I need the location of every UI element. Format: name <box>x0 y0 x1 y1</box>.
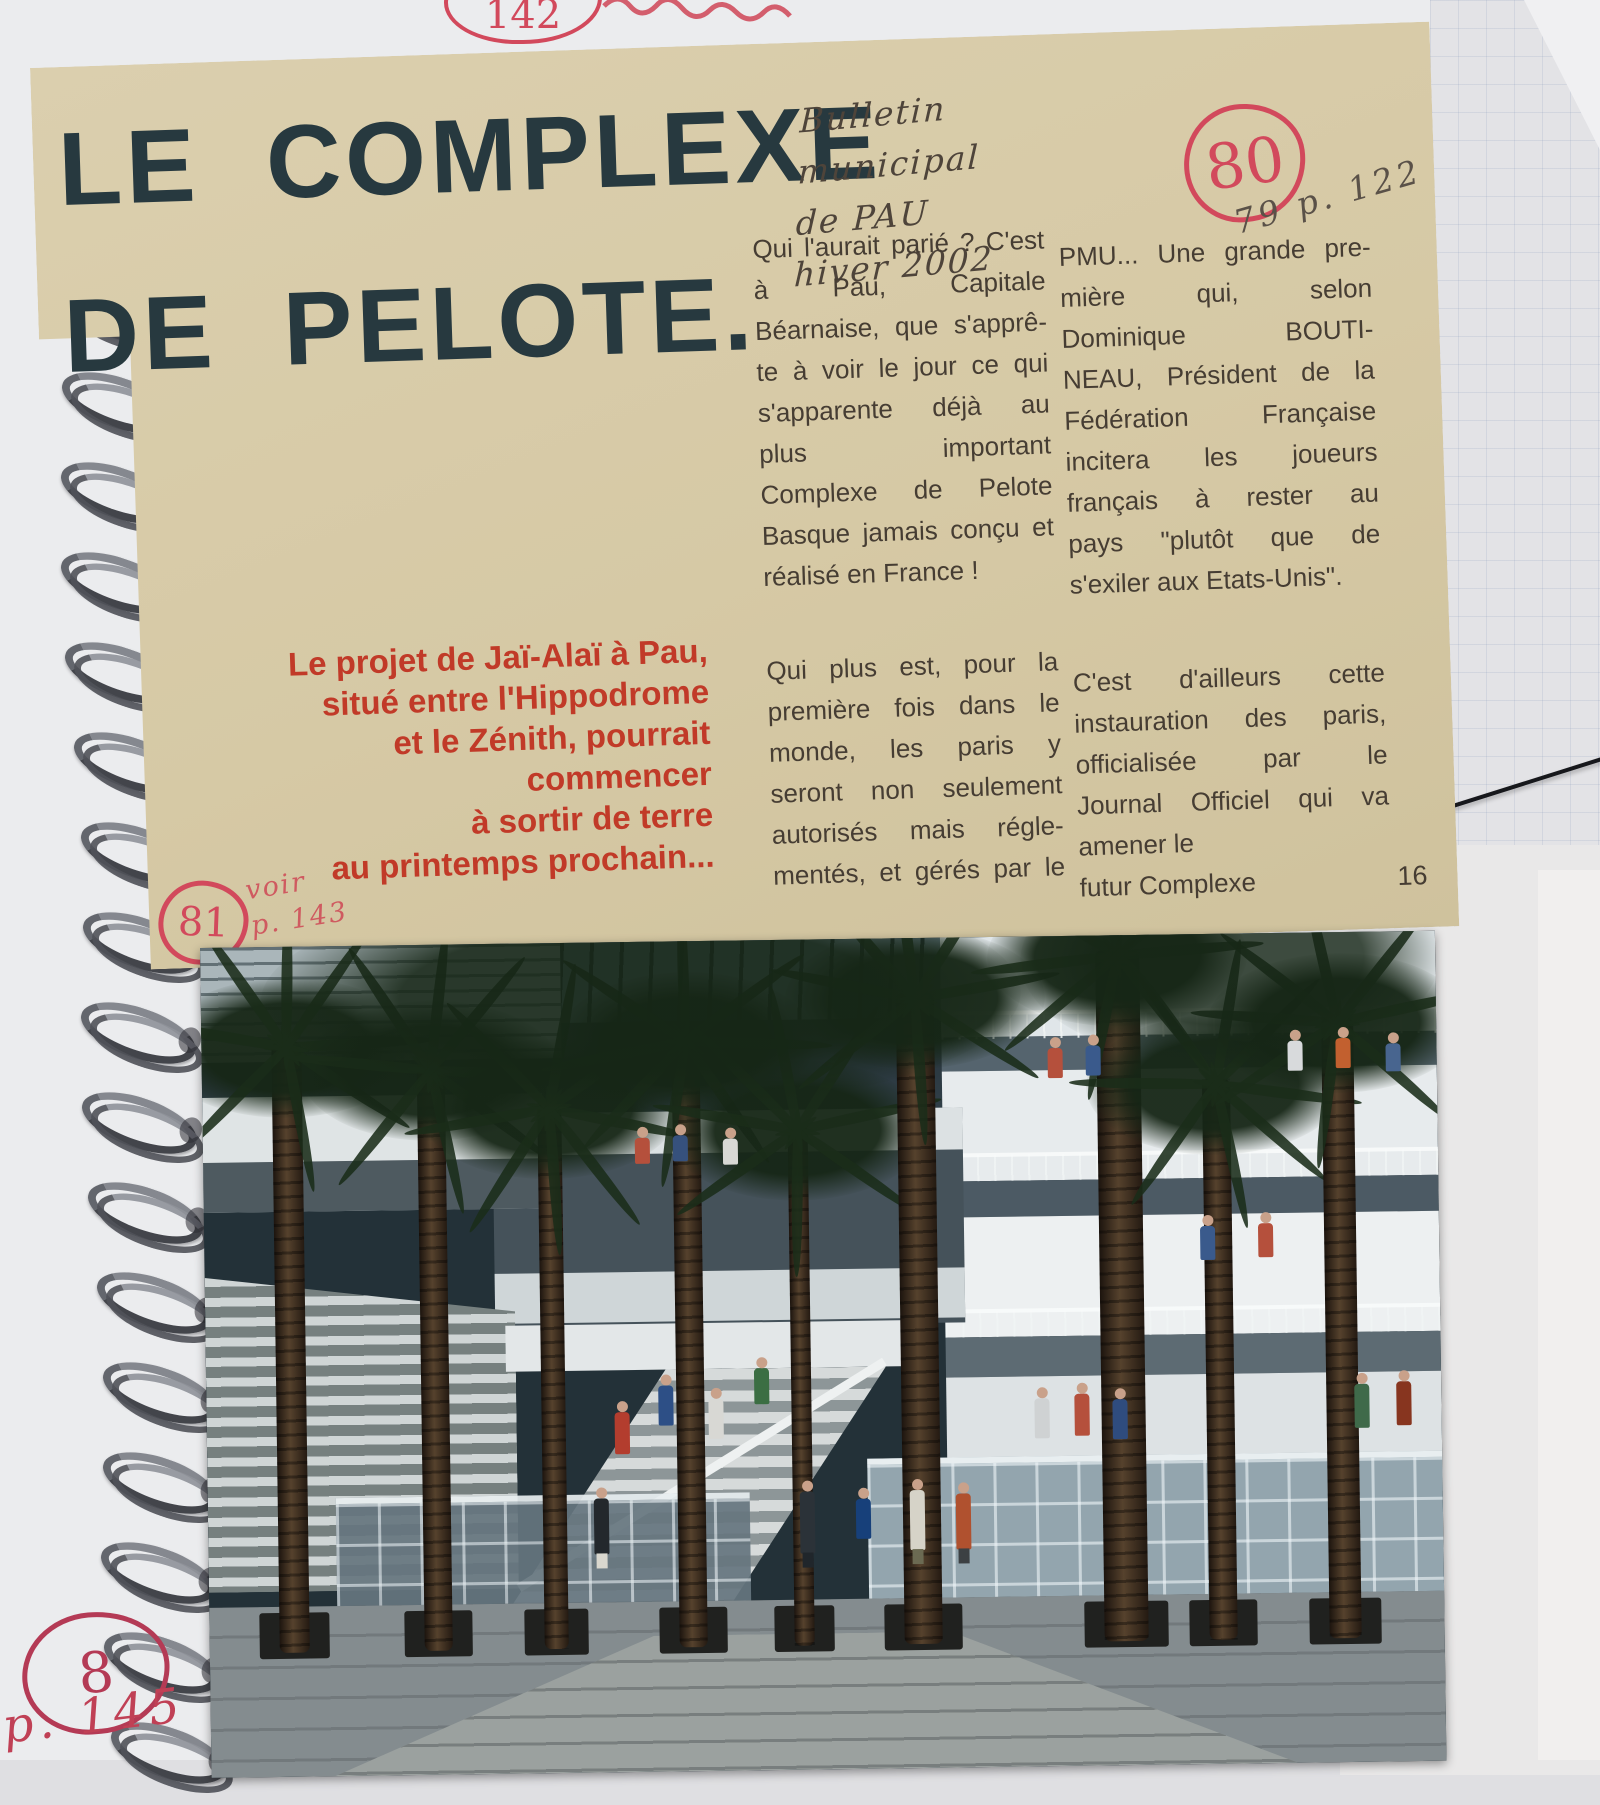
red-deck: Le projet de Jaï-Alaï à Pau,situé entre … <box>249 630 715 891</box>
person-legs <box>803 1552 814 1567</box>
person <box>635 1138 650 1164</box>
stair-landing <box>505 1320 926 1372</box>
architecture-photo <box>200 931 1446 1778</box>
person-legs <box>959 1548 970 1563</box>
spiral-ring <box>99 1440 224 1516</box>
notebook-page: 142 LE COMPLEXE DE PELOTE. Bulletinmunic… <box>0 0 1600 1760</box>
article-column-2: PMU...Unegrandepre-mièrequi,selonDominiq… <box>1058 232 1382 611</box>
person-legs <box>913 1549 924 1564</box>
article-column-4: C'estd'ailleurscetteinstaurationdesparis… <box>1072 657 1392 913</box>
red-scribble <box>600 0 840 36</box>
spiral-ring <box>98 1350 223 1426</box>
spiral-ring <box>84 1170 209 1246</box>
person <box>754 1368 770 1404</box>
balcony-void <box>946 1331 1442 1378</box>
person <box>1074 1394 1090 1436</box>
person <box>1287 1041 1302 1071</box>
person <box>800 1491 816 1553</box>
article-column-3: Quiplusest,pourlapremièrefoisdanslemonde… <box>766 646 1066 902</box>
person <box>1112 1399 1128 1439</box>
spiral-ring <box>93 1260 218 1336</box>
white-sheet <box>1538 870 1600 1760</box>
article-column-1: Quil'auraitparié?C'estàPau,CapitaleBéarn… <box>752 224 1056 602</box>
article-title: LE COMPLEXE DE PELOTE. <box>56 63 787 421</box>
person <box>1258 1223 1273 1257</box>
newspaper-clipping: LE COMPLEXE DE PELOTE. Bulletinmunicipal… <box>30 22 1459 973</box>
spiral-ring <box>77 990 202 1066</box>
person <box>658 1385 674 1425</box>
person <box>1085 1045 1100 1075</box>
person <box>956 1493 972 1549</box>
person <box>723 1139 738 1165</box>
spiral-ring <box>78 1080 203 1156</box>
person-legs <box>597 1553 608 1568</box>
corner-sheet <box>1524 0 1600 150</box>
title-line-1: LE COMPLEXE <box>56 63 781 254</box>
person <box>910 1490 926 1550</box>
person <box>1200 1226 1215 1260</box>
person <box>1047 1048 1062 1078</box>
mezzanine-band <box>495 1267 966 1324</box>
person <box>1354 1384 1370 1428</box>
title-line-2: DE PELOTE. <box>61 230 786 421</box>
person <box>856 1499 872 1539</box>
text-line: et le Zénith, pourrait commencer <box>252 712 712 809</box>
person <box>1385 1043 1400 1071</box>
person <box>673 1135 688 1161</box>
person <box>594 1498 610 1554</box>
article-page-number: 16 <box>1347 860 1428 894</box>
see-reference: voirp. 143 <box>243 858 351 944</box>
person <box>615 1412 631 1454</box>
person <box>708 1399 724 1439</box>
top-circled-number: 142 <box>444 0 602 44</box>
spiral-ring <box>97 1530 222 1606</box>
person <box>1396 1381 1412 1425</box>
person <box>1034 1398 1050 1438</box>
person <box>1335 1038 1350 1068</box>
